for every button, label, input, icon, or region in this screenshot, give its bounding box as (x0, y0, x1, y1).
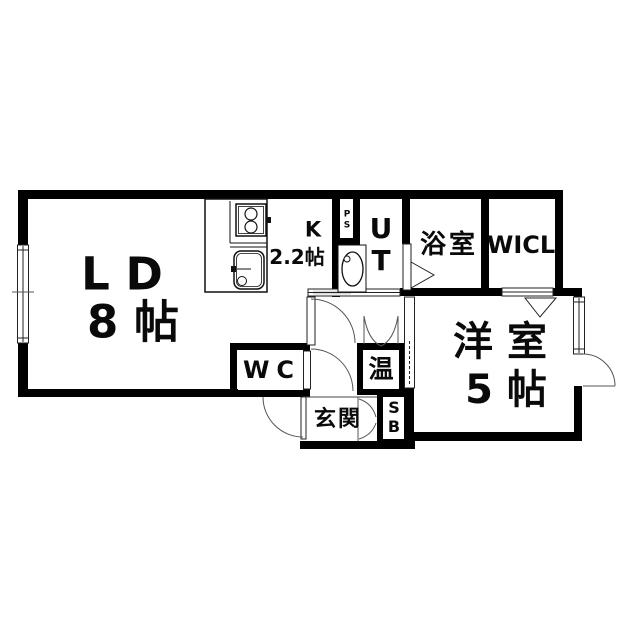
label-shoe-box-s: S (388, 400, 400, 416)
door-panel-wc (304, 351, 311, 389)
label-walk-in-closet: WICL (487, 233, 555, 257)
double-door-water-heater (364, 316, 398, 346)
label-shoe-box-b: B (388, 419, 400, 435)
wall-segment (230, 343, 237, 397)
sink-icon (231, 251, 264, 289)
label-pipe-space-s: S (344, 222, 350, 231)
wall-segment (574, 386, 582, 441)
door-arc-ldk-hall (311, 299, 355, 343)
label-water-heater: 温 (368, 357, 393, 382)
wall-segment (18, 389, 238, 397)
label-bathroom: 浴室 (420, 232, 478, 258)
label-utility-u: U (370, 215, 393, 243)
door-panel-entrance (301, 397, 306, 439)
label-entrance: 玄関 (314, 409, 362, 431)
wall-segment (230, 343, 310, 350)
label-toilet: WC (243, 358, 301, 382)
door-panel-bath (403, 244, 411, 290)
door-arc-entrance (263, 397, 303, 437)
folding-door-bath-icon (411, 262, 434, 288)
label-living-dining-size: 8 帖 (87, 300, 179, 345)
label-pipe-space-p: P (344, 211, 351, 220)
label-western-room-size: 5 帖 (465, 370, 547, 410)
door-arc-western-room-exterior (583, 354, 615, 386)
window-left (12, 245, 34, 343)
label-kitchen-size: 2.2帖 (269, 247, 324, 267)
wall-segment (18, 341, 28, 397)
label-utility-t: T (371, 247, 390, 275)
wall-segment (402, 190, 410, 244)
sliding-direction-wicl-icon (525, 298, 556, 317)
wall-segment (400, 288, 502, 296)
wall-segment (405, 432, 582, 441)
door-panel-ldk-hall (307, 297, 315, 345)
wall-segment (230, 390, 310, 397)
wall-segment (353, 190, 360, 245)
wall-segment (332, 238, 360, 245)
label-kitchen: K (305, 220, 321, 241)
wall-segment (18, 190, 28, 247)
wall-segment (555, 190, 563, 296)
floor-plan: L D 8 帖 K 2.2帖 P S U T 浴室 WICL WC 温 玄関 S… (0, 0, 639, 640)
label-western-room-name: 洋 室 (453, 322, 547, 362)
door-arc-wc (311, 349, 353, 391)
window-western-room (574, 297, 585, 354)
washbasin-icon (338, 245, 366, 292)
label-living-dining-name: L D (81, 252, 163, 297)
stove-icon (236, 204, 271, 236)
